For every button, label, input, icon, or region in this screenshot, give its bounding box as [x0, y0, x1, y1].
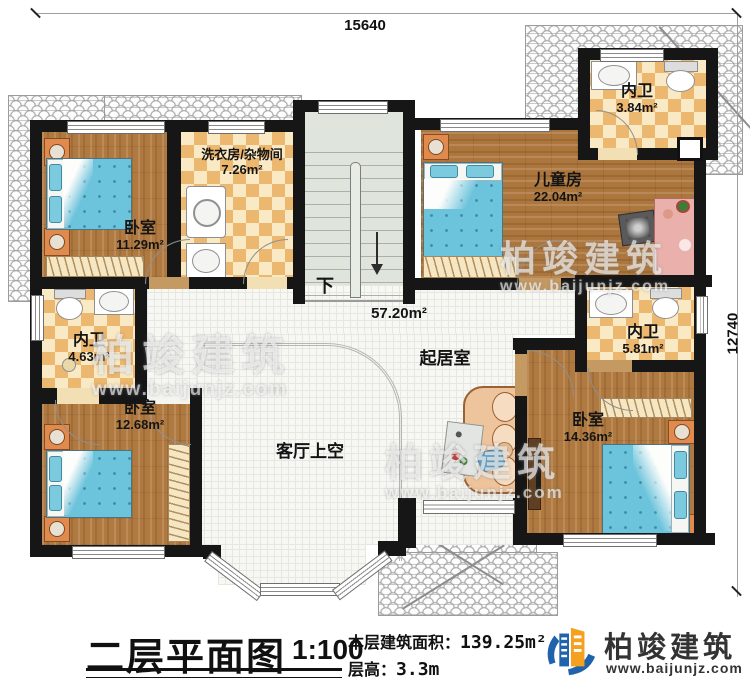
- sink: [94, 288, 134, 315]
- logo-building-icon: [540, 620, 598, 683]
- title-underline: [86, 668, 342, 678]
- logo-url: www.baijunjz.com: [606, 660, 743, 676]
- tv-stand: [528, 438, 541, 510]
- room-label-bath-tr: 内卫3.84m²: [602, 83, 672, 116]
- wall: [398, 498, 416, 548]
- room-label-bedroom-br: 卧室14.36m²: [536, 412, 640, 445]
- window: [423, 500, 515, 514]
- dimension-line-top: [35, 13, 737, 14]
- floor-height-value: 3.3m: [396, 659, 439, 680]
- window: [318, 101, 388, 114]
- window: [600, 49, 664, 62]
- living-area-value: 57.20m²: [352, 305, 446, 322]
- toilet-bowl: [652, 297, 679, 319]
- room-label-living: 起居室: [402, 349, 488, 369]
- dresser: [654, 198, 698, 278]
- bay-window: [260, 583, 340, 596]
- floor-area-label: 本层建筑面积：: [348, 635, 460, 652]
- wall: [575, 287, 587, 372]
- bed: [46, 450, 132, 518]
- nightstand: [423, 134, 449, 160]
- floor-area-value: 139.25m²: [460, 632, 547, 653]
- dimension-right: 12740: [724, 313, 741, 355]
- wall: [706, 48, 718, 160]
- stair-arrow-line: [376, 232, 378, 266]
- logo: 柏竣建筑 www.baijunjz.com: [540, 620, 750, 682]
- room-label-bedroom-bl: 卧室12.68m²: [88, 400, 192, 433]
- wall: [189, 277, 247, 289]
- floor-plan: 卧室11.29m² 洗衣房/杂物间7.26m² 内卫3.84m² 儿童房22.0…: [0, 0, 750, 684]
- stair-down-label: 下: [310, 276, 340, 297]
- nightstand: [44, 228, 70, 256]
- window: [696, 296, 708, 334]
- room-label-bedroom-tl: 卧室11.29m²: [92, 220, 188, 253]
- floor-height-label: 层高：: [348, 662, 396, 679]
- closet: [168, 444, 190, 542]
- window: [72, 546, 165, 559]
- window: [440, 119, 550, 132]
- window: [67, 121, 165, 134]
- stair-handrail: [350, 162, 361, 298]
- washing-machine: [186, 186, 226, 238]
- wall: [578, 48, 590, 160]
- stair-arrow-head: [371, 264, 383, 281]
- laundry-sink: [186, 243, 226, 279]
- wall: [515, 338, 527, 354]
- wall: [30, 388, 57, 404]
- hall-left-floor: [147, 333, 197, 393]
- room-label-bath-right: 内卫5.81m²: [604, 324, 682, 357]
- dimension-line-right: [737, 13, 738, 597]
- bed: [423, 162, 503, 260]
- floor-area-line: 本层建筑面积：139.25m²: [348, 629, 547, 653]
- column-box: [677, 137, 703, 161]
- wall: [30, 277, 149, 289]
- computer-desk: [618, 210, 658, 247]
- wall: [409, 278, 519, 290]
- room-label-laundry: 洗衣房/杂物间7.26m²: [188, 148, 296, 178]
- room-label-bath-left: 内卫4.63m²: [48, 332, 130, 365]
- wall: [632, 360, 694, 372]
- wall: [293, 112, 305, 304]
- wall: [135, 287, 147, 388]
- room-label-void: 客厅上空: [252, 442, 368, 462]
- wall: [575, 275, 712, 287]
- wall: [694, 148, 706, 287]
- stair-bottom-line: [305, 300, 403, 302]
- closet: [46, 256, 144, 277]
- nightstand: [44, 516, 70, 542]
- closet: [423, 256, 517, 278]
- dimension-top: 15640: [320, 17, 410, 34]
- floor-height-line: 层高：3.3m: [348, 656, 439, 680]
- plant: [676, 200, 690, 213]
- person: [476, 440, 516, 474]
- room-label-children: 儿童房22.04m²: [512, 172, 604, 205]
- bed: [602, 444, 690, 534]
- wall: [403, 112, 415, 304]
- window: [563, 534, 657, 547]
- window: [208, 121, 265, 134]
- toilet-bowl: [56, 297, 83, 320]
- nightstand: [668, 420, 696, 444]
- door-opening: [515, 354, 527, 396]
- wall: [578, 148, 598, 160]
- window: [31, 295, 44, 341]
- sink: [589, 289, 633, 318]
